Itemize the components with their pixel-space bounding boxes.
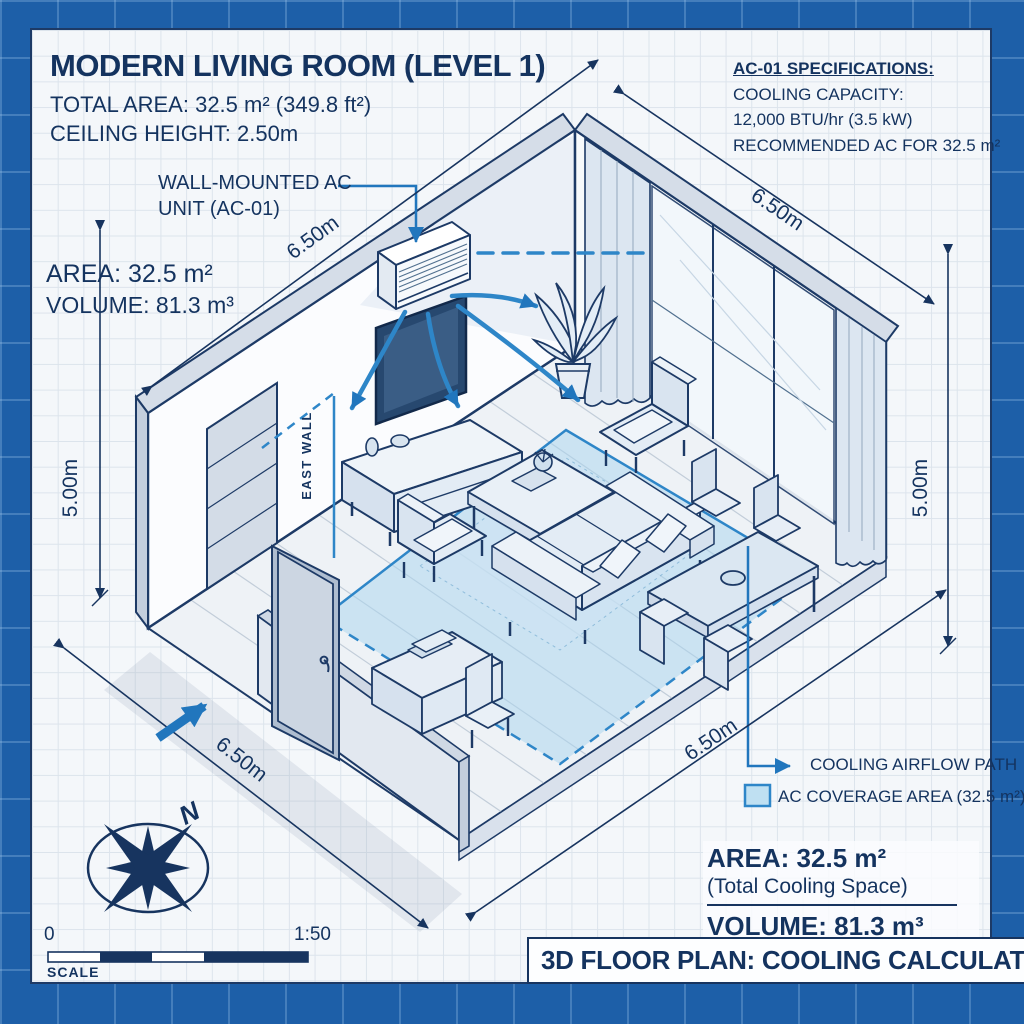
room-volume-text: VOLUME: 81.3 m³ — [46, 292, 234, 319]
east-wall-label: EAST WALL — [299, 411, 314, 500]
ac-capacity-label: COOLING CAPACITY: — [733, 82, 1000, 108]
total-area-text: TOTAL AREA: 32.5 m² (349.8 ft²) — [50, 90, 545, 119]
blueprint-page: { "header": { "title": "MODERN LIVING RO… — [0, 0, 1024, 1024]
scale-bar — [48, 952, 308, 962]
dim-label-right: 5.00m — [909, 459, 933, 517]
entry-door — [272, 546, 339, 760]
ac-recommendation: RECOMMENDED AC FOR 32.5 m² — [733, 133, 1000, 159]
compass-rose-icon — [88, 824, 208, 912]
dim-label-left: 5.00m — [59, 459, 83, 517]
ac-capacity-value: 12,000 BTU/hr (3.5 kW) — [733, 107, 1000, 133]
room-stats-block: AREA: 32.5 m² VOLUME: 81.3 m³ — [46, 260, 234, 319]
legend-coverage-label: AC COVERAGE AREA (32.5 m²) — [778, 787, 1024, 807]
ac-spec-block: AC-01 SPECIFICATIONS: COOLING CAPACITY: … — [733, 56, 1000, 158]
scale-word-label: SCALE — [47, 964, 99, 980]
coverage-swatch — [745, 785, 770, 806]
legend-airflow-label: COOLING AIRFLOW PATH — [810, 755, 1017, 775]
scale-start-label: 0 — [44, 924, 55, 946]
page-title: MODERN LIVING ROOM (LEVEL 1) — [50, 48, 545, 84]
summary-divider — [707, 904, 957, 906]
summary-area-text: AREA: 32.5 m² — [707, 843, 975, 874]
scale-ratio-label: 1:50 — [294, 924, 331, 946]
bowl — [391, 435, 409, 447]
room-area-text: AREA: 32.5 m² — [46, 260, 234, 289]
curtain-right — [836, 308, 886, 566]
ceiling-height-text: CEILING HEIGHT: 2.50m — [50, 119, 545, 148]
summary-subtitle-text: (Total Cooling Space) — [707, 875, 975, 899]
cooling-summary-block: AREA: 32.5 m² (Total Cooling Space) VOLU… — [703, 841, 979, 944]
plan-title: 3D FLOOR PLAN: COOLING CALCULATION — [527, 937, 1024, 984]
ac-spec-title: AC-01 SPECIFICATIONS: — [733, 56, 1000, 82]
title-block: MODERN LIVING ROOM (LEVEL 1) TOTAL AREA:… — [50, 48, 545, 148]
ac-unit-label: WALL-MOUNTED AC UNIT (AC-01) — [158, 170, 352, 222]
vase — [366, 438, 378, 456]
curtain-left — [585, 139, 650, 406]
table-bowl — [721, 571, 745, 585]
